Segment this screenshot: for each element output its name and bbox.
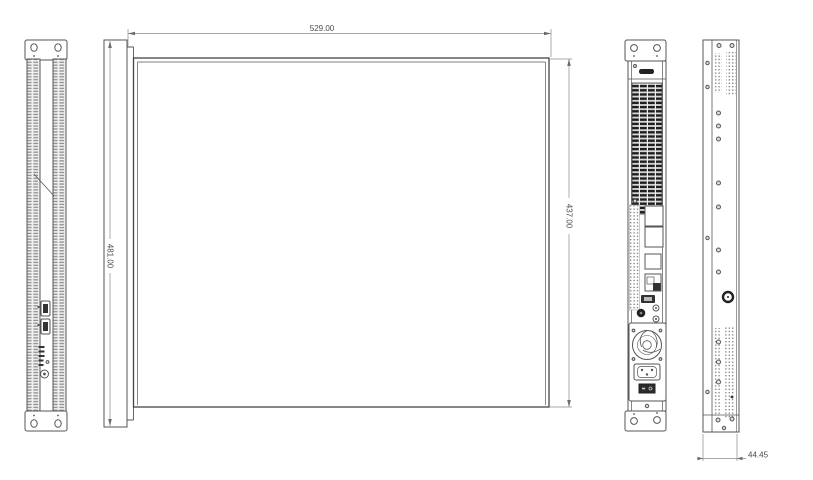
front-right-vent-strip [53, 59, 66, 411]
drawing-sheet: 529.00 481.00 437.00 [0, 0, 813, 480]
rear-handle-label [639, 69, 654, 74]
dim-arrow [544, 32, 551, 36]
screw-icon [717, 340, 721, 344]
reset-pinhole-icon [46, 361, 49, 364]
side-view [703, 40, 739, 432]
screw-icon [717, 137, 721, 141]
screw-icon [706, 236, 709, 239]
rear-exhaust-vent [632, 83, 662, 214]
screw-icon [717, 248, 721, 252]
dim-label-top-width: 529.00 [310, 24, 335, 33]
screw-icon [633, 199, 636, 202]
screw-icon [645, 404, 648, 407]
dim-label-unit-height: 44.45 [748, 451, 769, 460]
dimension-body-width: 437.00 [549, 59, 574, 407]
screw-icon [706, 390, 709, 393]
power-switch [639, 384, 655, 393]
dim-label-body-width: 437.00 [565, 204, 574, 229]
screw-icon [659, 329, 662, 332]
dim-arrow [698, 457, 704, 460]
dim-arrow [128, 32, 135, 36]
dim-label-front-panel-width: 481.00 [106, 244, 115, 269]
screw-icon [722, 426, 725, 429]
top-view-chassis-body [134, 58, 550, 407]
technical-drawing: 529.00 481.00 437.00 [0, 0, 813, 480]
screw-icon [717, 360, 721, 364]
screw-icon [717, 205, 721, 209]
top-view-front-bezel [104, 40, 127, 427]
dim-arrow [567, 400, 571, 407]
screw-icon [659, 358, 662, 361]
expansion-slot [645, 206, 663, 226]
screw-icon [716, 418, 720, 422]
dimension-unit-height: 44.45 [697, 434, 769, 461]
power-supply-unit [629, 323, 666, 401]
screw-icon [632, 358, 635, 361]
rear-panel-view [625, 40, 666, 431]
expansion-slot [645, 227, 663, 247]
screw-icon [717, 181, 721, 185]
side-top-vent [714, 53, 722, 93]
front-panel-view [25, 40, 67, 431]
screw-icon [634, 65, 637, 68]
side-top-vent [726, 50, 736, 95]
video-port [645, 254, 661, 269]
screw-icon [717, 44, 721, 48]
screw-icon [730, 44, 734, 48]
screw-icon [730, 417, 734, 421]
screw-icon [706, 61, 709, 64]
dimension-top-width: 529.00 [128, 24, 551, 57]
screw-icon [717, 270, 721, 274]
screw-icon [632, 329, 635, 332]
bezel-step [127, 47, 134, 58]
dim-arrow [567, 59, 571, 66]
screw-icon [717, 124, 721, 128]
rear-side-vent-strip [630, 205, 640, 310]
top-view [104, 40, 549, 427]
screw-icon [717, 380, 721, 384]
screw-icon [717, 111, 721, 115]
screw-icon [706, 85, 709, 88]
dim-arrow [737, 457, 743, 460]
front-left-vent-strip [27, 59, 40, 411]
side-bottom-vent [725, 326, 735, 418]
bezel-step [127, 407, 134, 420]
